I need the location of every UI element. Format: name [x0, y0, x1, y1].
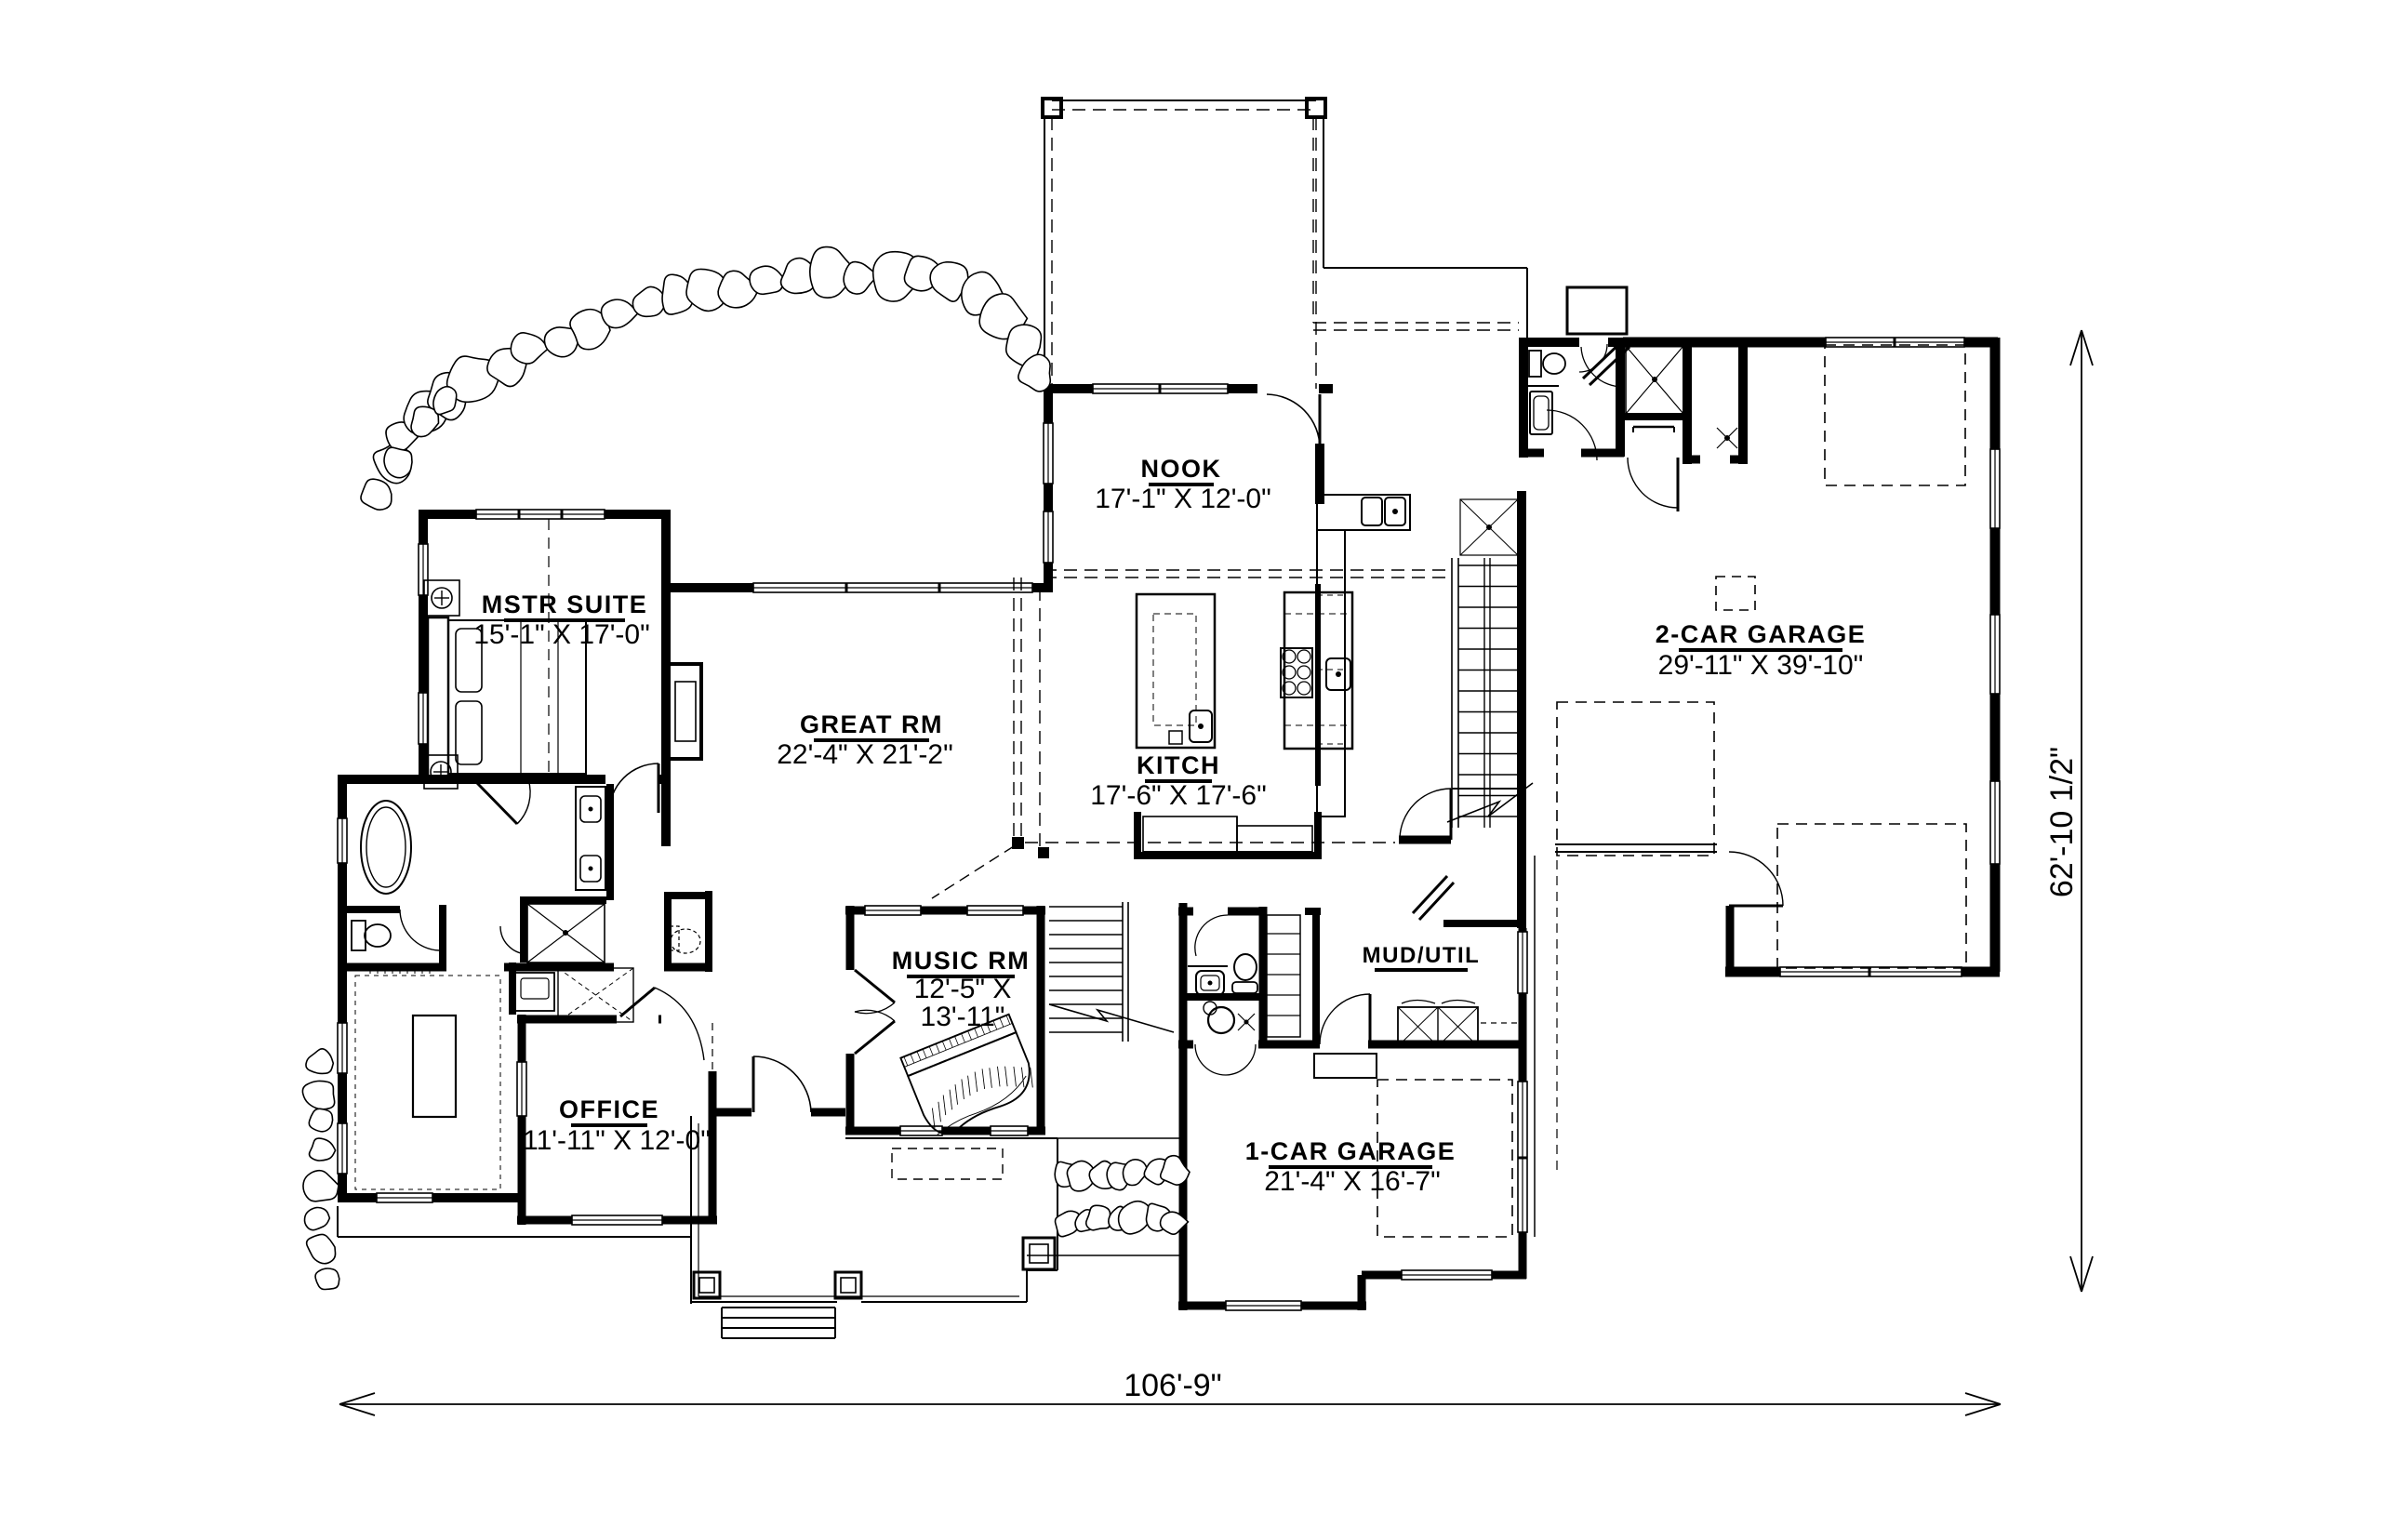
svg-text:GREAT RM: GREAT RM — [800, 710, 943, 738]
svg-text:106'-9": 106'-9" — [1124, 1368, 1222, 1403]
svg-text:MUD/UTIL: MUD/UTIL — [1363, 943, 1481, 968]
svg-text:KITCH: KITCH — [1137, 751, 1220, 779]
svg-text:29'-11" X 39'-10": 29'-11" X 39'-10" — [1658, 650, 1864, 681]
svg-text:MSTR SUITE: MSTR SUITE — [482, 591, 648, 618]
svg-text:MUSIC RM: MUSIC RM — [892, 947, 1031, 975]
svg-text:NOOK: NOOK — [1141, 455, 1222, 483]
svg-text:17'-1" X 12'-0": 17'-1" X 12'-0" — [1095, 484, 1271, 514]
svg-text:15'-1" X 17'-0": 15'-1" X 17'-0" — [473, 619, 650, 650]
svg-text:21'-4" X 16'-7": 21'-4" X 16'-7" — [1264, 1166, 1441, 1197]
svg-text:12'-5" X: 12'-5" X — [914, 974, 1012, 1004]
svg-text:13'-11": 13'-11" — [921, 1002, 1005, 1032]
svg-text:OFFICE: OFFICE — [559, 1095, 659, 1123]
svg-text:17'-6" X 17'-6": 17'-6" X 17'-6" — [1090, 780, 1267, 811]
svg-text:62'-10 1/2": 62'-10 1/2" — [2044, 747, 2080, 897]
svg-text:2-CAR GARAGE: 2-CAR GARAGE — [1656, 620, 1867, 648]
svg-text:22'-4" X 21'-2": 22'-4" X 21'-2" — [777, 739, 953, 770]
svg-text:11'-11" X 12'-0": 11'-11" X 12'-0" — [523, 1125, 711, 1156]
svg-text:1-CAR GARAGE: 1-CAR GARAGE — [1245, 1137, 1457, 1165]
